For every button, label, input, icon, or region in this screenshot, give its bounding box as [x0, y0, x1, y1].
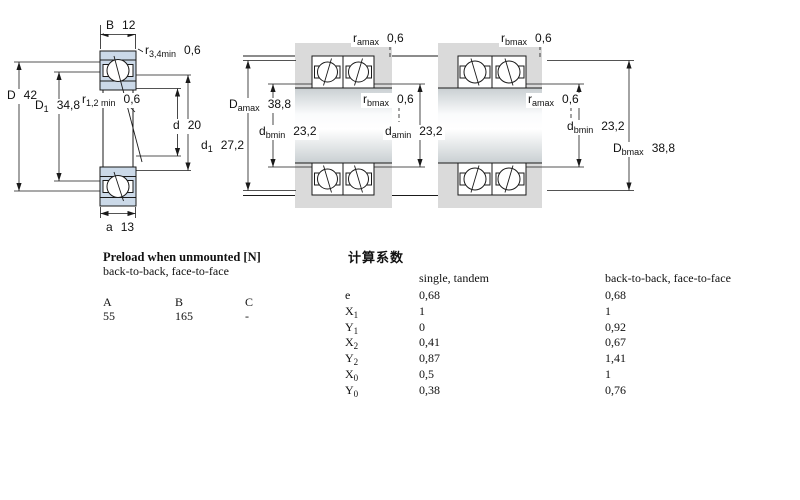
dim-label-ramax-right: ramax0,6 — [526, 93, 581, 108]
bearing-pair-bottom — [312, 163, 374, 195]
ball — [107, 176, 129, 198]
factor-paired-value: 1,41 — [605, 352, 626, 365]
factor-paired-value: 0,67 — [605, 336, 626, 349]
factor-single-value: 0 — [419, 321, 425, 334]
preload-value-C: - — [245, 310, 249, 323]
dim-label-rbmax-mid: rbmax0,6 — [361, 93, 416, 108]
dimension-a — [101, 207, 136, 218]
dim-label-d: d20 — [171, 119, 203, 134]
bearing-bottom-half — [100, 167, 136, 206]
dim-label-B: B12 — [104, 19, 137, 34]
factor-single-value: 0,38 — [419, 384, 440, 397]
dim-label-r12: r1,2 min0,6 — [80, 93, 142, 108]
factors-title: 计算系数 — [348, 250, 404, 265]
preload-col-A: A — [103, 296, 112, 309]
dim-label-r34: r3,4min0,6 — [143, 44, 203, 59]
dimension-D1 — [54, 72, 100, 181]
dim-label-Damax: Damax38,8 — [227, 98, 293, 113]
factor-single-value: 0,68 — [419, 289, 440, 302]
dim-label-rbmax-right: rbmax0,6 — [499, 32, 554, 47]
preload-value-B: 165 — [175, 310, 193, 323]
bearing-pair-top — [458, 56, 526, 88]
factor-paired-value: 1 — [605, 368, 611, 381]
factors-col-paired-header: back-to-back, face-to-face — [605, 272, 731, 285]
factor-single-value: 1 — [419, 305, 425, 318]
factor-single-value: 0,5 — [419, 368, 434, 381]
bearing-datasheet-page: B12 r3,4min0,6 D42 D134,8 r1,2 min0,6 d2… — [0, 0, 800, 500]
factor-paired-value: 0,76 — [605, 384, 626, 397]
preload-title: Preload when unmounted [N] — [103, 250, 261, 264]
bearing-pair-bottom — [458, 163, 526, 195]
bearing-pair-top — [312, 56, 374, 88]
factor-paired-value: 0,68 — [605, 289, 626, 302]
dim-label-ramax-mid: ramax0,6 — [351, 32, 406, 47]
dim-label-d1: d127,2 — [199, 139, 246, 154]
preload-value-A: 55 — [103, 310, 115, 323]
dim-label-damin: damin23,2 — [383, 125, 445, 140]
dim-label-dbmin-mid: dbmin23,2 — [257, 125, 319, 140]
dim-label-Dbmax: Dbmax38,8 — [611, 142, 677, 157]
dimension-D — [14, 62, 100, 191]
factor-paired-value: 0,92 — [605, 321, 626, 334]
preload-col-B: B — [175, 296, 183, 309]
factor-paired-value: 1 — [605, 305, 611, 318]
dim-label-dbmin-right: dbmin23,2 — [565, 120, 627, 135]
factor-single-value: 0,87 — [419, 352, 440, 365]
dim-label-a: a13 — [104, 221, 136, 236]
factor-symbol: Y0 — [345, 384, 358, 401]
preload-subtitle: back-to-back, face-to-face — [103, 265, 229, 278]
preload-col-C: C — [245, 296, 253, 309]
factor-single-value: 0,41 — [419, 336, 440, 349]
dim-label-D1: D134,8 — [33, 99, 82, 114]
factors-col-single-header: single, tandem — [419, 272, 489, 285]
